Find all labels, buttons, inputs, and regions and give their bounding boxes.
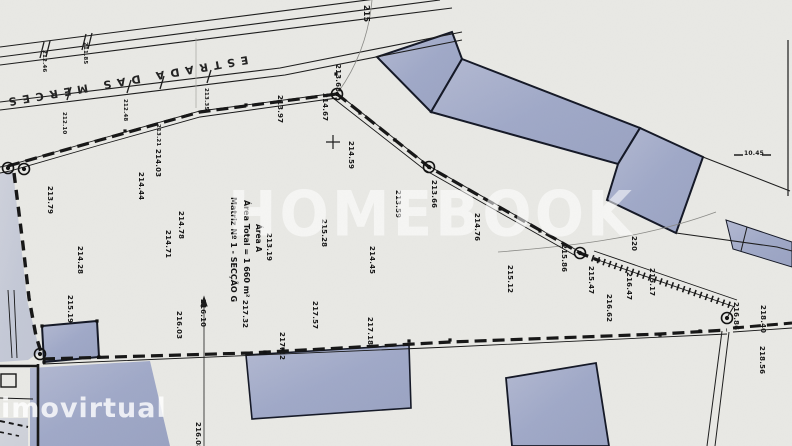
homebook-watermark: HOMEBOOK <box>228 177 608 250</box>
imovirtual-watermark: imovirtual <box>1 393 167 424</box>
site-plan-image: 212.46211.85212.10212.48213.21213.35213.… <box>0 0 792 446</box>
